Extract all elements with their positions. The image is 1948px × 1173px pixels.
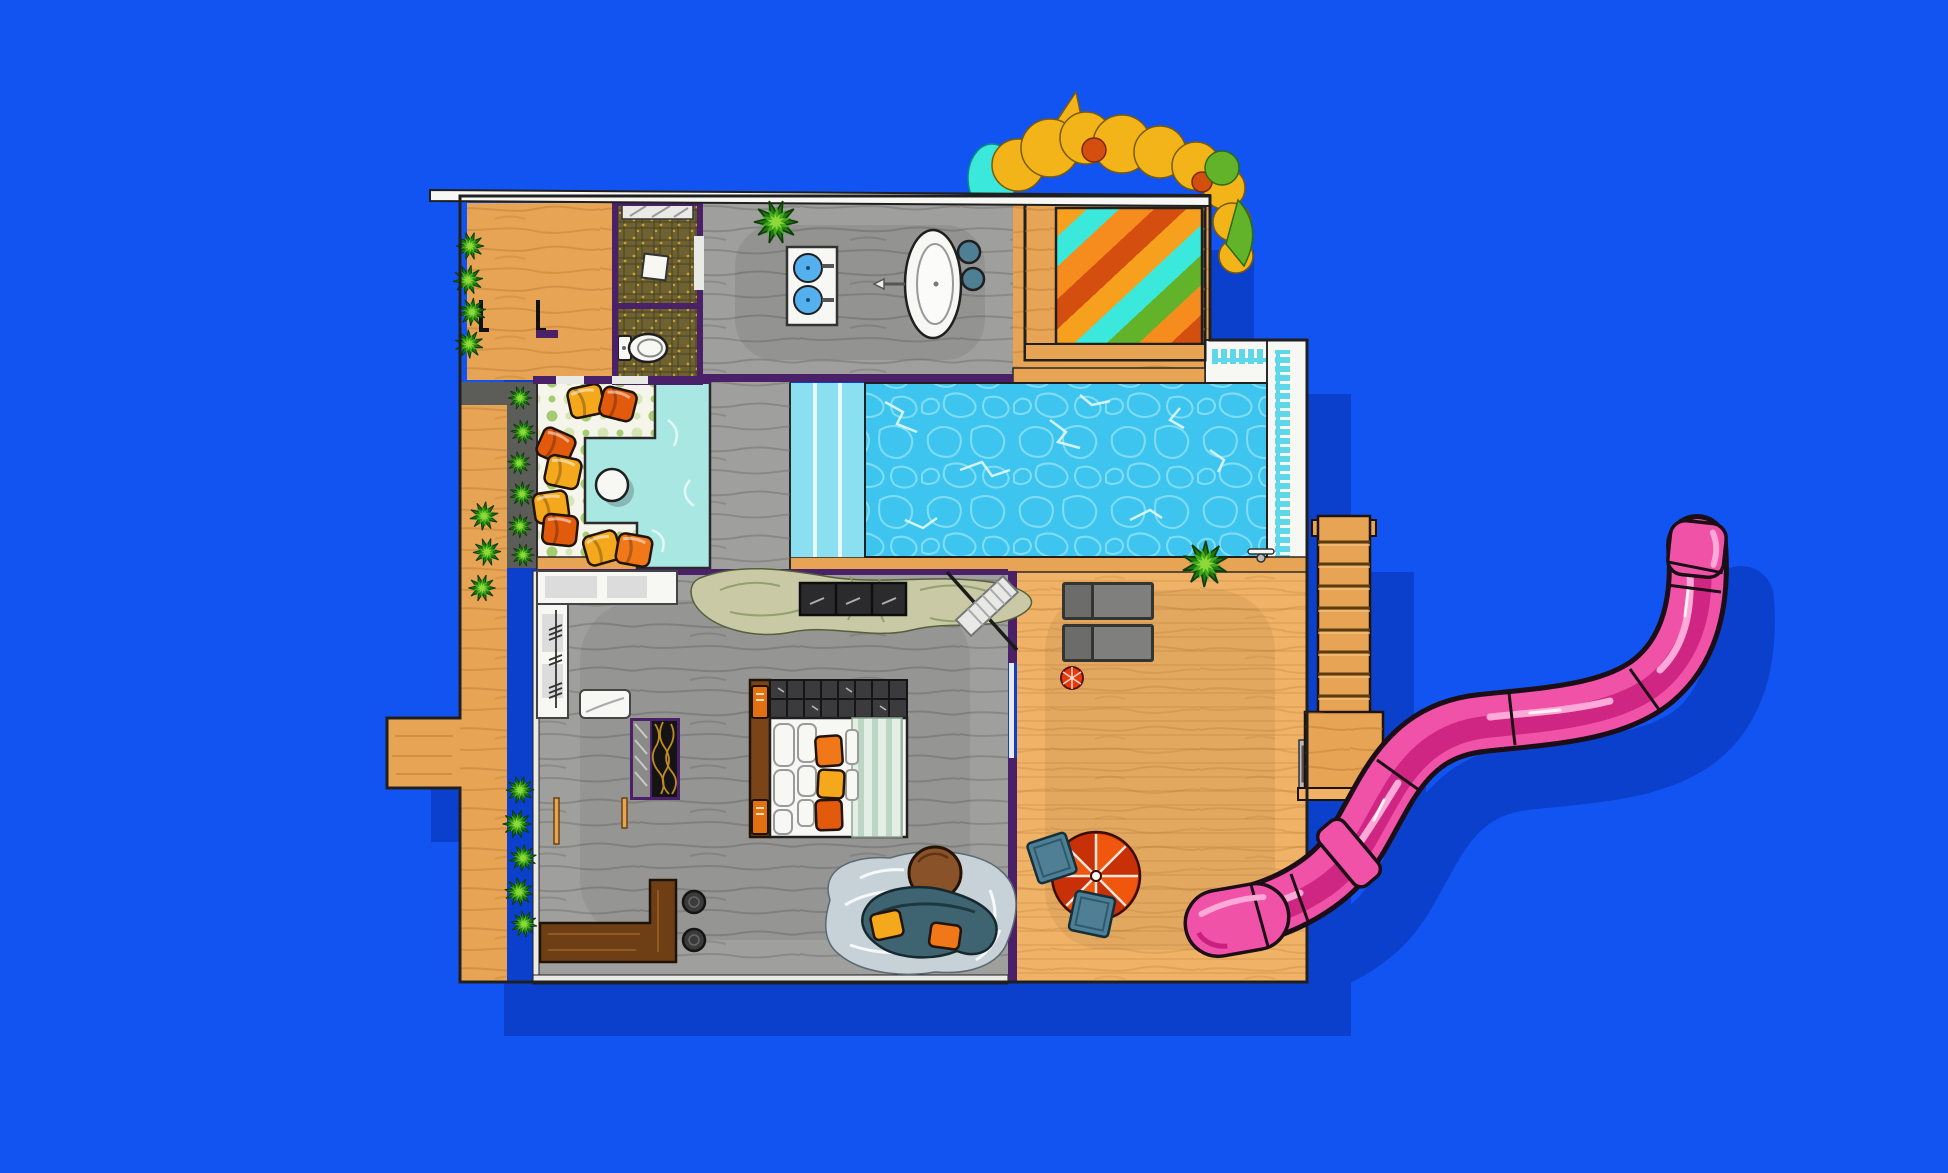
illustration-canvas <box>0 0 1948 1173</box>
bar-stool <box>683 891 705 913</box>
awning-stripes <box>1056 208 1202 344</box>
shower-door-gap <box>694 236 704 290</box>
tree-blob-red <box>1082 138 1106 162</box>
tree-blob-green <box>1205 151 1239 185</box>
planter-strip <box>507 382 537 568</box>
bath-stool <box>962 268 984 290</box>
wood-lounge-room <box>467 203 615 380</box>
bathroom-floor <box>700 203 1013 380</box>
floor-plan-illustration <box>0 0 1948 1173</box>
wall-stub <box>536 330 558 338</box>
planter-corner <box>460 382 507 405</box>
bath-stool <box>958 241 980 263</box>
media-console <box>800 583 906 615</box>
sofa-cushion <box>928 922 961 950</box>
wooden-stairs <box>1312 516 1376 714</box>
pool-top-sill <box>1013 368 1205 383</box>
patio-door-leaf <box>1009 663 1014 758</box>
bed-cushions <box>815 735 845 830</box>
striped-awning-canopy <box>1025 202 1205 360</box>
shower-drain-tray <box>642 254 669 281</box>
blind-pull <box>622 798 627 828</box>
beach-ball <box>1061 667 1083 689</box>
toilet <box>618 334 667 362</box>
pool-steps <box>790 383 865 557</box>
striped-duvet <box>852 718 902 837</box>
shower-toilet-block <box>615 203 704 382</box>
sofa-cushion <box>870 909 905 941</box>
slide-entrance <box>1666 519 1727 579</box>
double-sink-vanity <box>787 247 837 325</box>
walkway-bridge <box>710 376 790 572</box>
swimming-pool <box>865 383 1267 557</box>
bar-stool <box>683 929 705 951</box>
bed <box>750 680 907 837</box>
blind-pull <box>554 798 559 844</box>
deck-wing <box>387 718 460 788</box>
pool-tile-band-right <box>1275 350 1290 560</box>
